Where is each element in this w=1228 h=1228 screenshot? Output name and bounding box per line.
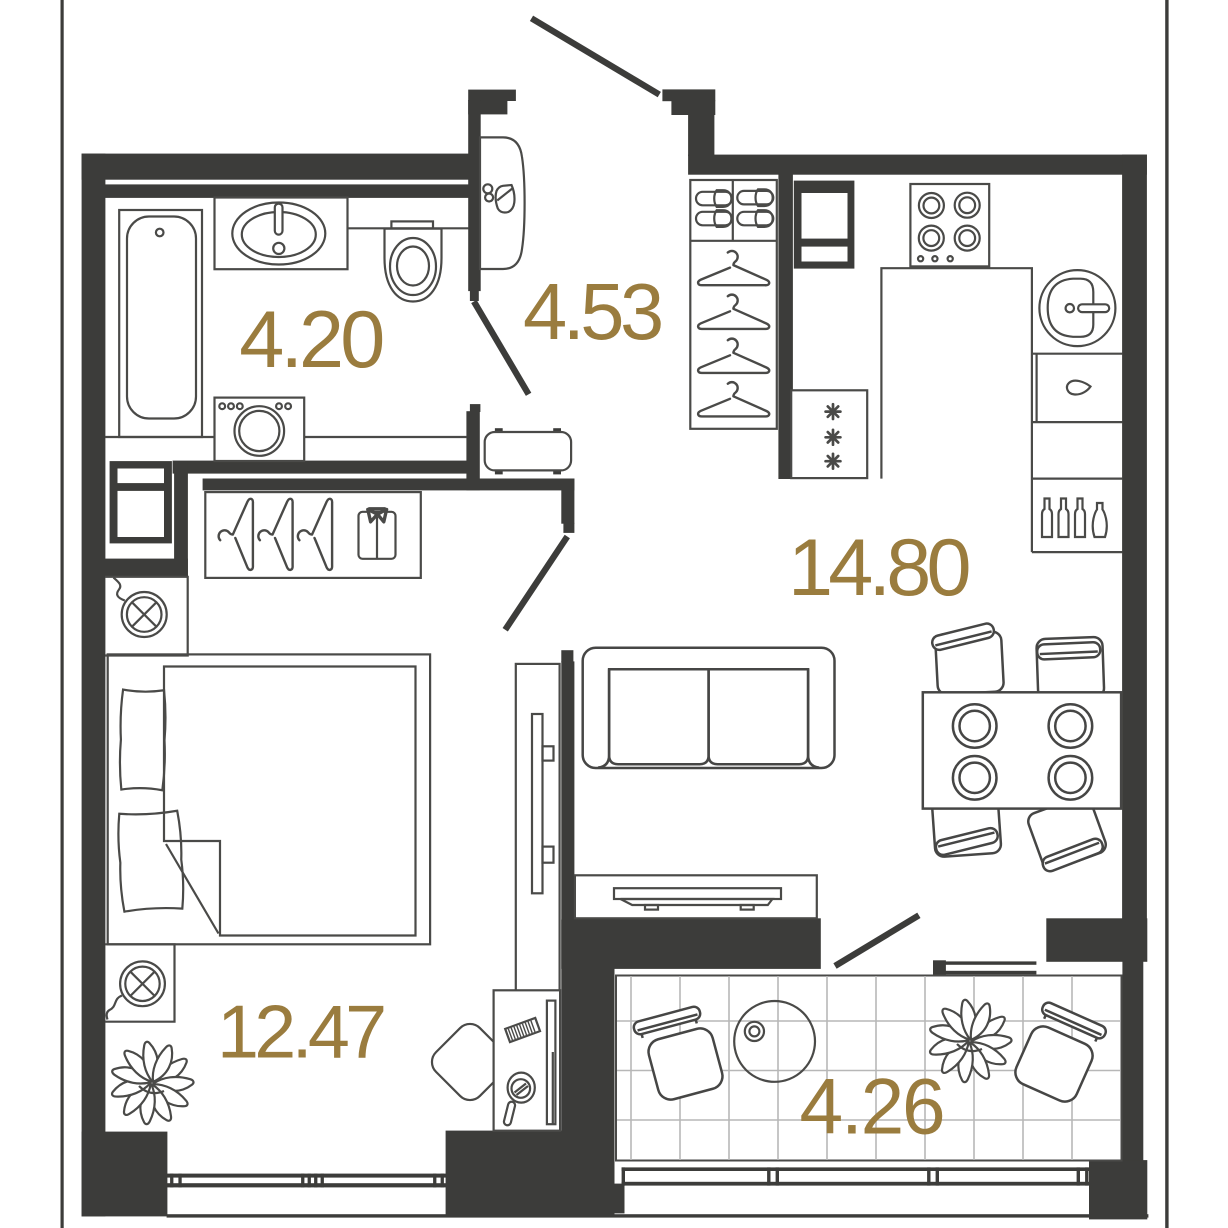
svg-text:14.80: 14.80 (788, 523, 968, 613)
svg-text:4.26: 4.26 (800, 1063, 944, 1151)
svg-text:12.47: 12.47 (217, 990, 384, 1074)
svg-text:4.53: 4.53 (523, 267, 661, 356)
svg-text:4.20: 4.20 (239, 295, 382, 385)
